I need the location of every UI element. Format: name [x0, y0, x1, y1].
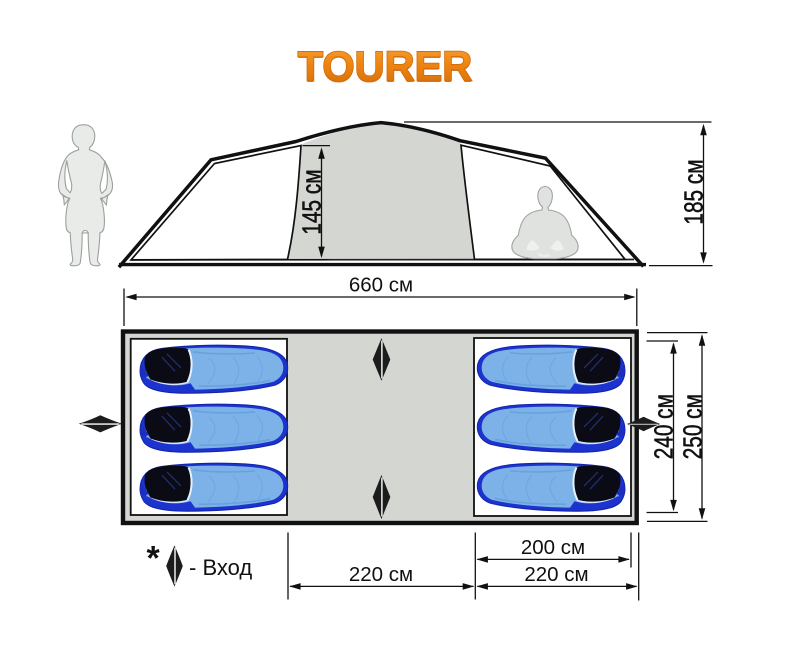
svg-text:185 см: 185 см	[679, 159, 708, 224]
svg-text:145 см: 145 см	[298, 169, 327, 234]
svg-text:250 см: 250 см	[678, 394, 707, 459]
svg-text:- Вход: - Вход	[189, 555, 252, 580]
svg-text:220 см: 220 см	[524, 563, 588, 586]
svg-text:660 см: 660 см	[349, 274, 413, 297]
svg-text:TOURER: TOURER	[298, 43, 473, 90]
svg-text:*: *	[147, 540, 161, 578]
svg-text:200 см: 200 см	[521, 536, 585, 559]
svg-text:240 см: 240 см	[649, 394, 678, 459]
svg-text:220 см: 220 см	[349, 563, 413, 586]
